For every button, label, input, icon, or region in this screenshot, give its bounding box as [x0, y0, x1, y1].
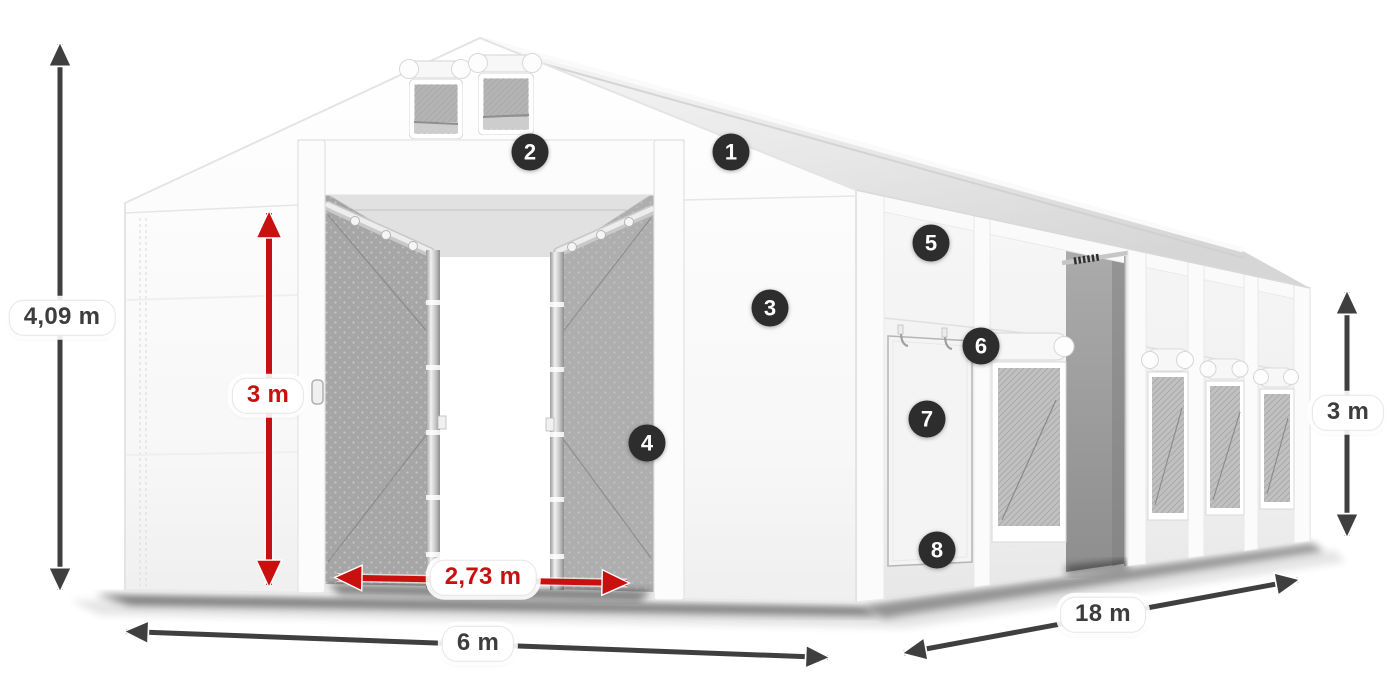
dimension-label-interior-height: 3 m	[232, 378, 304, 414]
callout-badge-1[interactable]: 1	[713, 134, 750, 171]
dimension-label-length: 18 m	[1060, 597, 1146, 633]
door-handle	[312, 380, 323, 404]
side-windows-rear	[1142, 349, 1299, 520]
callout-badge-6[interactable]: 6	[963, 328, 1000, 365]
side-entrance-flap	[888, 325, 972, 566]
dimension-label-width: 6 m	[442, 626, 514, 662]
callout-badge-3[interactable]: 3	[752, 290, 789, 327]
callout-badge-4[interactable]: 4	[629, 425, 666, 462]
dimension-label-side-height: 3 m	[1312, 395, 1384, 431]
tent-illustration	[0, 0, 1400, 700]
callout-badge-2[interactable]: 2	[512, 134, 549, 171]
callout-badge-5[interactable]: 5	[913, 225, 950, 262]
side-window-front	[977, 333, 1074, 542]
callout-badge-8[interactable]: 8	[919, 532, 956, 569]
front-entrance-opening	[325, 193, 654, 601]
tent-product-diagram: 4,09 m 3 m 2,73 m 6 m 18 m 3 m 1 2 3 4 5…	[0, 0, 1400, 700]
dimension-label-total-height: 4,09 m	[9, 300, 116, 336]
side-open-doorway	[1062, 251, 1134, 575]
callout-badge-7[interactable]: 7	[909, 401, 946, 438]
dimension-label-entrance-width: 2,73 m	[430, 560, 537, 596]
